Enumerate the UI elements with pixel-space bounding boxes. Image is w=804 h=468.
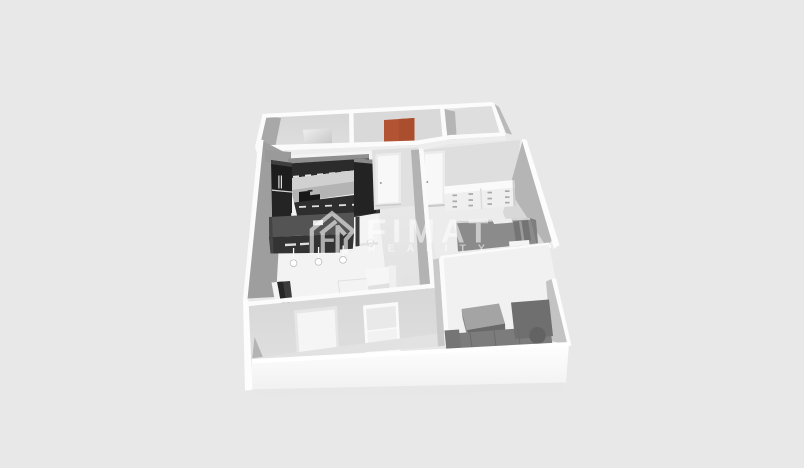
svg-text:REALITY: REALITY [368, 243, 497, 255]
